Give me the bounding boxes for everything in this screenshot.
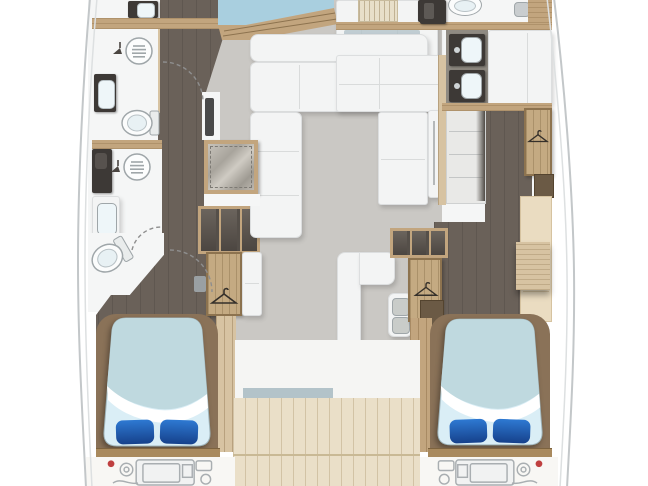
shower-column bbox=[420, 0, 446, 24]
right-dark-box bbox=[534, 174, 554, 198]
engine-block-icon bbox=[405, 457, 555, 486]
right-center-staircase bbox=[390, 228, 448, 258]
vanity-counter bbox=[488, 30, 552, 106]
forward-counter-basin bbox=[137, 3, 155, 18]
right-double-bed bbox=[434, 316, 546, 448]
left-step-box bbox=[194, 276, 206, 292]
tv-panel bbox=[205, 98, 214, 136]
hanger-icon bbox=[208, 284, 240, 310]
right-wood-cabinet bbox=[528, 0, 552, 23]
shower-drain-icon bbox=[122, 152, 152, 182]
mid-wood-shelf bbox=[92, 140, 162, 149]
floorplan-canvas bbox=[0, 0, 648, 486]
galley-counter-top bbox=[336, 55, 442, 112]
toilet-1 bbox=[120, 104, 162, 142]
vanity-cell-1 bbox=[449, 34, 485, 66]
hatch-ledge bbox=[204, 194, 260, 206]
shower-head-icon bbox=[110, 40, 124, 58]
engine-block-icon bbox=[95, 457, 245, 486]
companionway-grate bbox=[358, 0, 398, 22]
shower-drain-icon bbox=[124, 36, 154, 66]
desk-wood-box bbox=[516, 242, 550, 290]
left-double-bed bbox=[100, 316, 214, 448]
vanity-cell-2 bbox=[449, 70, 485, 102]
left-cabinet-front bbox=[242, 252, 262, 316]
shower-head-icon bbox=[108, 158, 122, 176]
hanger-icon bbox=[526, 126, 550, 148]
cockpit-teak-deck bbox=[233, 398, 420, 486]
right-hull-staircase bbox=[446, 108, 486, 204]
hanger-icon bbox=[412, 278, 440, 302]
skylight-hatch-table bbox=[204, 140, 258, 194]
galley-wood-strip bbox=[438, 55, 446, 205]
galley-counter-column bbox=[378, 112, 428, 205]
vanity-basin-1 bbox=[98, 80, 115, 109]
